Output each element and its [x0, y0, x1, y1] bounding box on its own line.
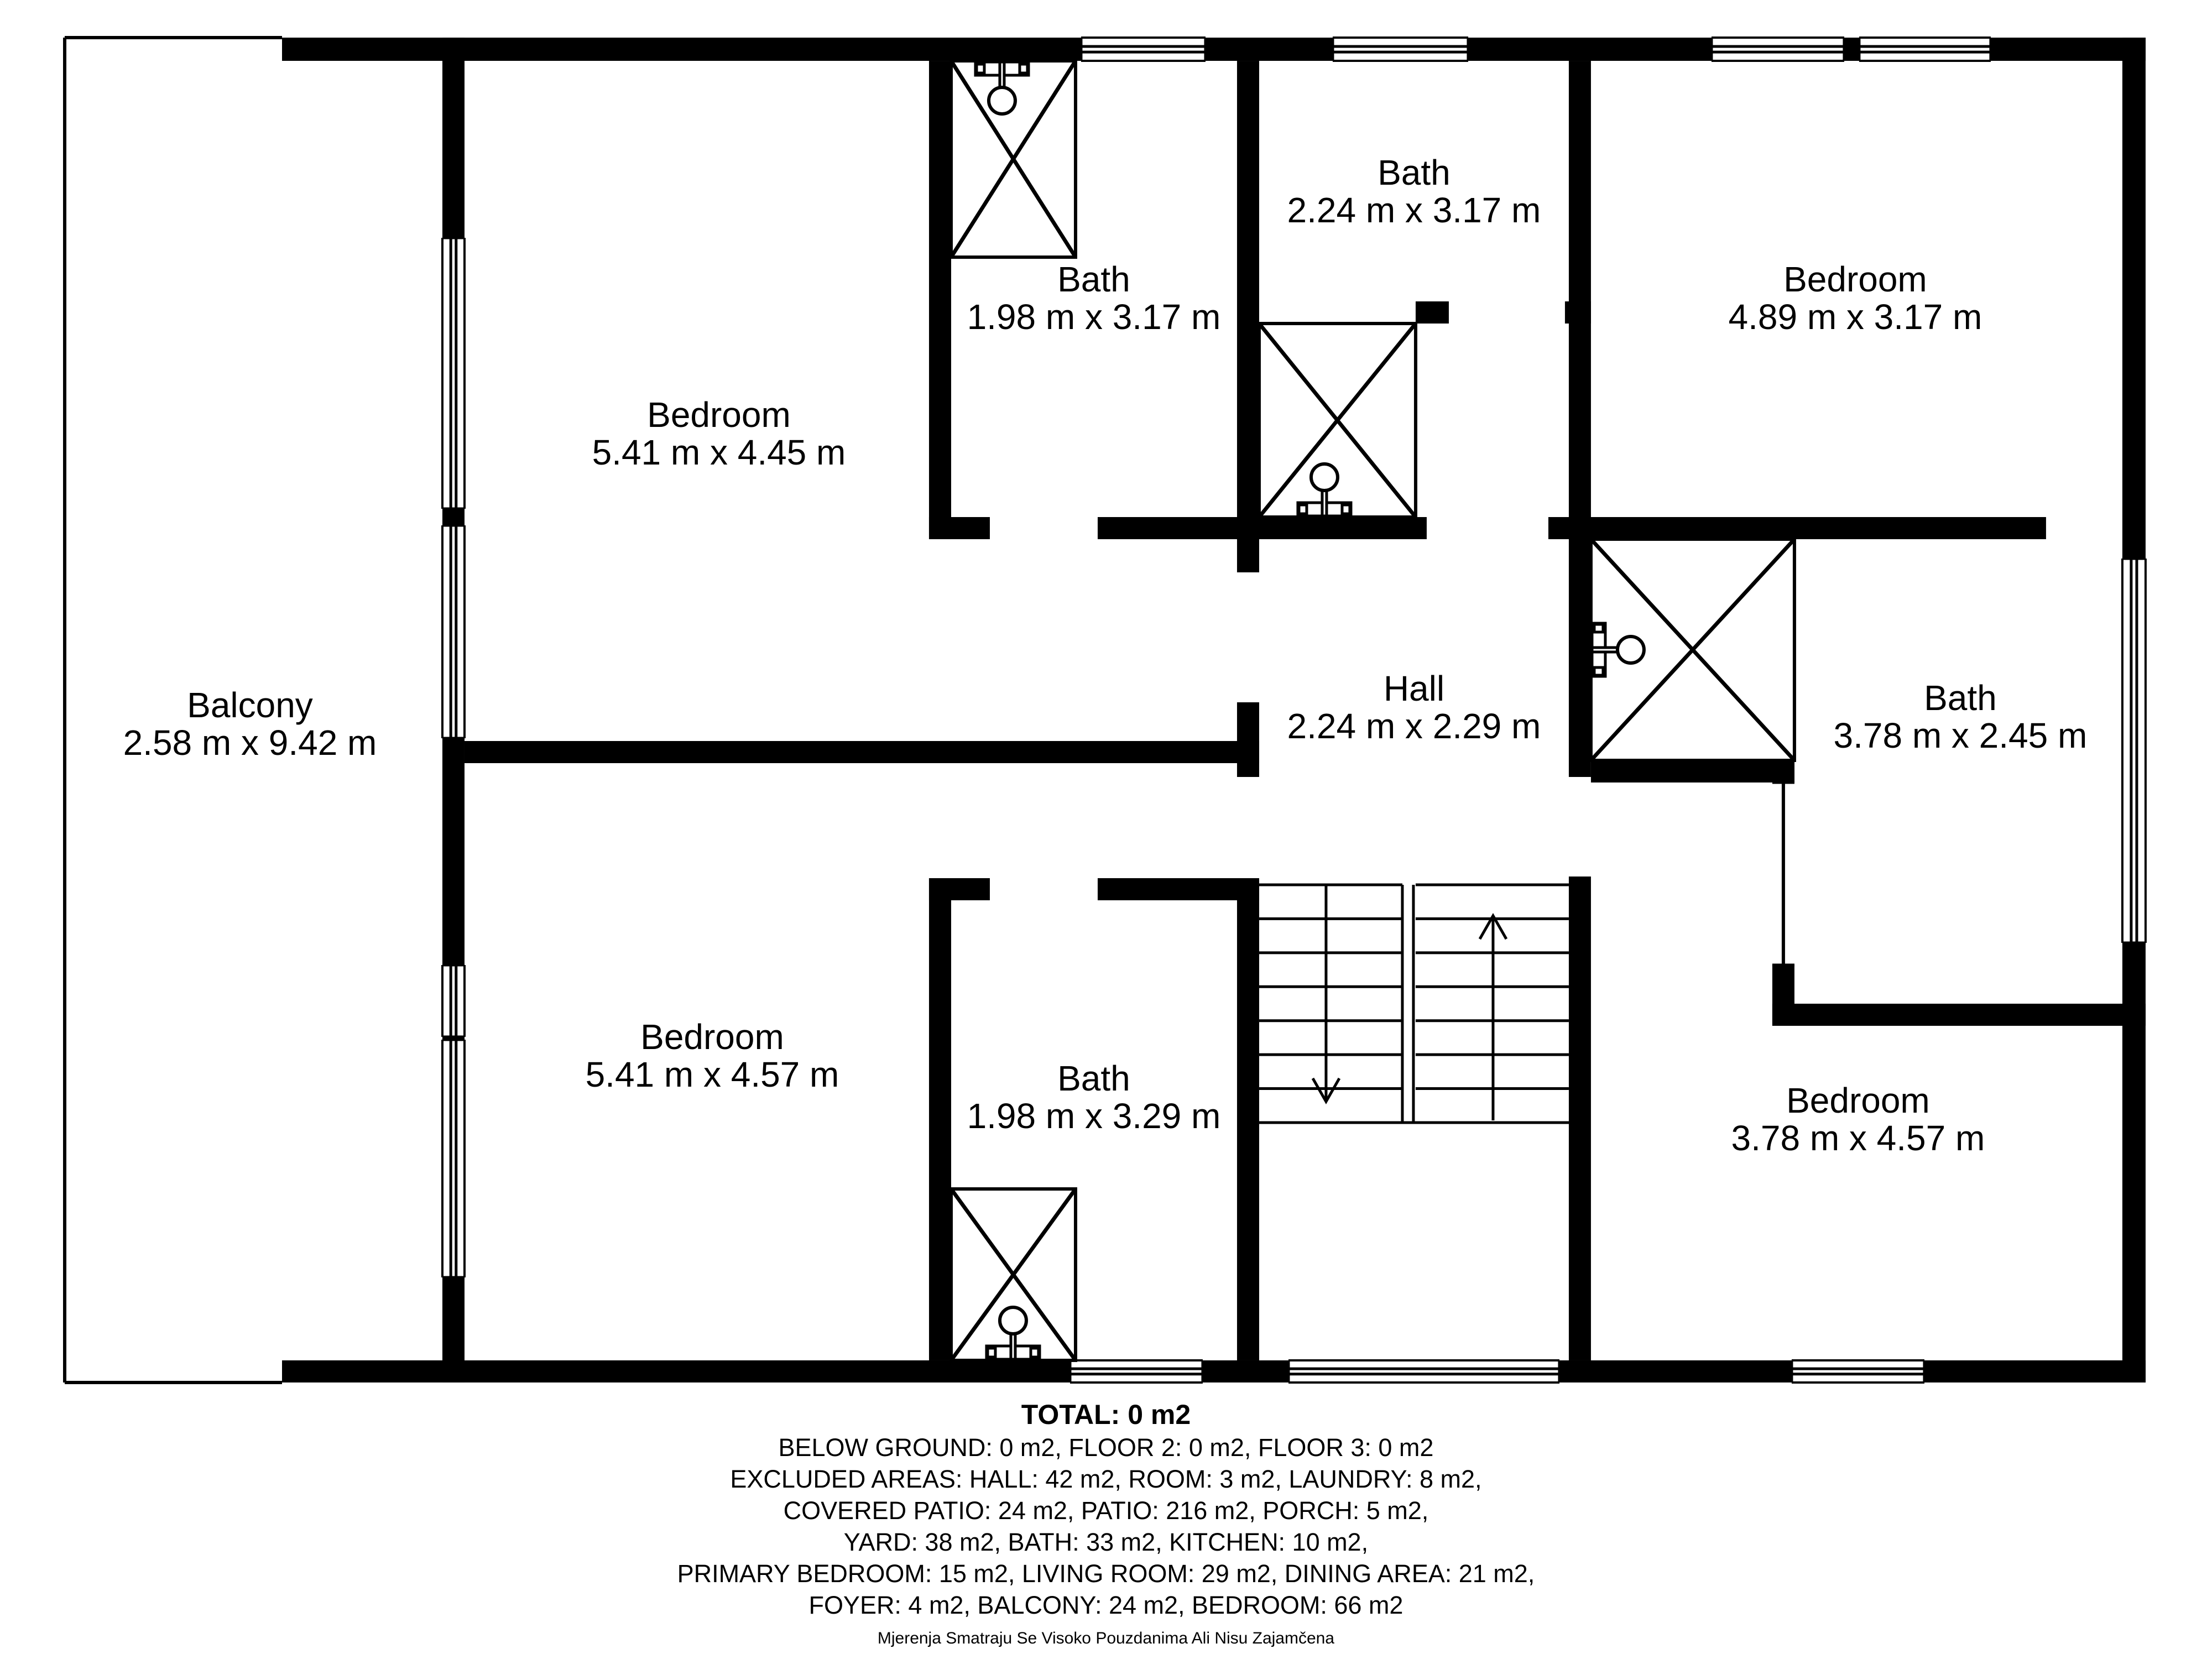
window	[1288, 1360, 1559, 1383]
room-label-bath-6: Bath	[1924, 678, 1997, 718]
wall	[1565, 301, 1591, 324]
shower-fixture-part	[1618, 637, 1644, 663]
wall	[929, 517, 990, 539]
room-label-bath-8: Bath	[1057, 1058, 1130, 1098]
room-dimensions-7: 5.41 m x 4.57 m	[586, 1055, 839, 1094]
shower-fixture-part	[1594, 624, 1603, 632]
window	[1859, 38, 1991, 61]
wall	[465, 741, 1259, 763]
wall	[1237, 61, 1259, 572]
footer-line-6: FOYER: 4 m2, BALCONY: 24 m2, BEDROOM: 66…	[809, 1591, 1404, 1619]
shower-fixture-part	[1020, 64, 1027, 73]
wall	[1237, 702, 1259, 777]
footer-line-4: YARD: 38 m2, BATH: 33 m2, KITCHEN: 10 m2…	[844, 1528, 1368, 1556]
floor-plan: Balcony2.58 m x 9.42 mBedroom5.41 m x 4.…	[0, 0, 2212, 1659]
footer-total: TOTAL: 0 m2	[1021, 1399, 1191, 1430]
shower-fixture-part	[1299, 505, 1307, 514]
wall	[1591, 760, 1794, 782]
wall	[1237, 885, 1259, 1360]
wall	[929, 878, 990, 900]
window	[1712, 38, 1844, 61]
wall	[929, 61, 951, 539]
shower-fixture-part	[1000, 1307, 1026, 1334]
window	[2122, 559, 2146, 943]
shower-fixture-part	[989, 87, 1015, 114]
footer-line-2: EXCLUDED AREAS: HALL: 42 m2, ROOM: 3 m2,…	[730, 1465, 1481, 1493]
room-label-bedroom-7: Bedroom	[640, 1017, 784, 1057]
room-dimensions-8: 1.98 m x 3.29 m	[967, 1096, 1221, 1136]
shower-fixture-part	[1342, 505, 1350, 514]
footer-line-3: COVERED PATIO: 24 m2, PATIO: 216 m2, POR…	[784, 1496, 1429, 1525]
window	[1070, 1360, 1203, 1383]
room-dimensions-2: 1.98 m x 3.17 m	[967, 297, 1221, 337]
window	[1792, 1360, 1924, 1383]
wall	[1772, 1004, 2146, 1026]
room-label-bath-2: Bath	[1057, 259, 1130, 299]
window	[442, 1040, 465, 1277]
wall	[929, 878, 951, 1360]
shower-fixture-part	[1031, 1348, 1039, 1357]
window	[1081, 38, 1206, 61]
wall	[1548, 517, 2046, 539]
room-label-bath-3: Bath	[1378, 153, 1451, 192]
disclaimer: Mjerenja Smatraju Se Visoko Pouzdanima A…	[878, 1629, 1334, 1647]
shower-fixture-part	[977, 64, 984, 73]
wall	[1569, 877, 1591, 1360]
shower-fixture-part	[988, 1348, 995, 1357]
floor-plan-page: Balcony2.58 m x 9.42 mBedroom5.41 m x 4.…	[0, 0, 2212, 1659]
wall	[1098, 517, 1427, 539]
room-label-bedroom-9: Bedroom	[1786, 1081, 1930, 1120]
room-dimensions-6: 3.78 m x 2.45 m	[1834, 716, 2088, 755]
window	[442, 238, 465, 509]
room-dimensions-5: 2.24 m x 2.29 m	[1287, 706, 1541, 746]
shower-fixture-part	[1594, 667, 1603, 675]
room-dimensions-4: 4.89 m x 3.17 m	[1729, 297, 1983, 337]
wall	[1098, 878, 1259, 900]
room-label-bedroom-1: Bedroom	[647, 395, 791, 435]
room-label-balcony-0: Balcony	[187, 685, 313, 725]
room-dimensions-9: 3.78 m x 4.57 m	[1731, 1118, 1985, 1158]
room-label-hall-5: Hall	[1384, 669, 1444, 708]
footer-line-1: BELOW GROUND: 0 m2, FLOOR 2: 0 m2, FLOOR…	[779, 1433, 1434, 1462]
window	[1333, 38, 1468, 61]
footer-line-5: PRIMARY BEDROOM: 15 m2, LIVING ROOM: 29 …	[677, 1559, 1535, 1588]
room-dimensions-1: 5.41 m x 4.45 m	[592, 432, 846, 472]
wall	[1416, 301, 1449, 324]
window	[442, 525, 465, 738]
room-dimensions-0: 2.58 m x 9.42 m	[123, 723, 377, 763]
window	[442, 965, 465, 1037]
room-label-bedroom-4: Bedroom	[1783, 259, 1927, 299]
wall	[1772, 760, 1794, 782]
shower-fixture-part	[1311, 464, 1338, 491]
wall	[1569, 61, 1591, 777]
room-dimensions-3: 2.24 m x 3.17 m	[1287, 190, 1541, 230]
